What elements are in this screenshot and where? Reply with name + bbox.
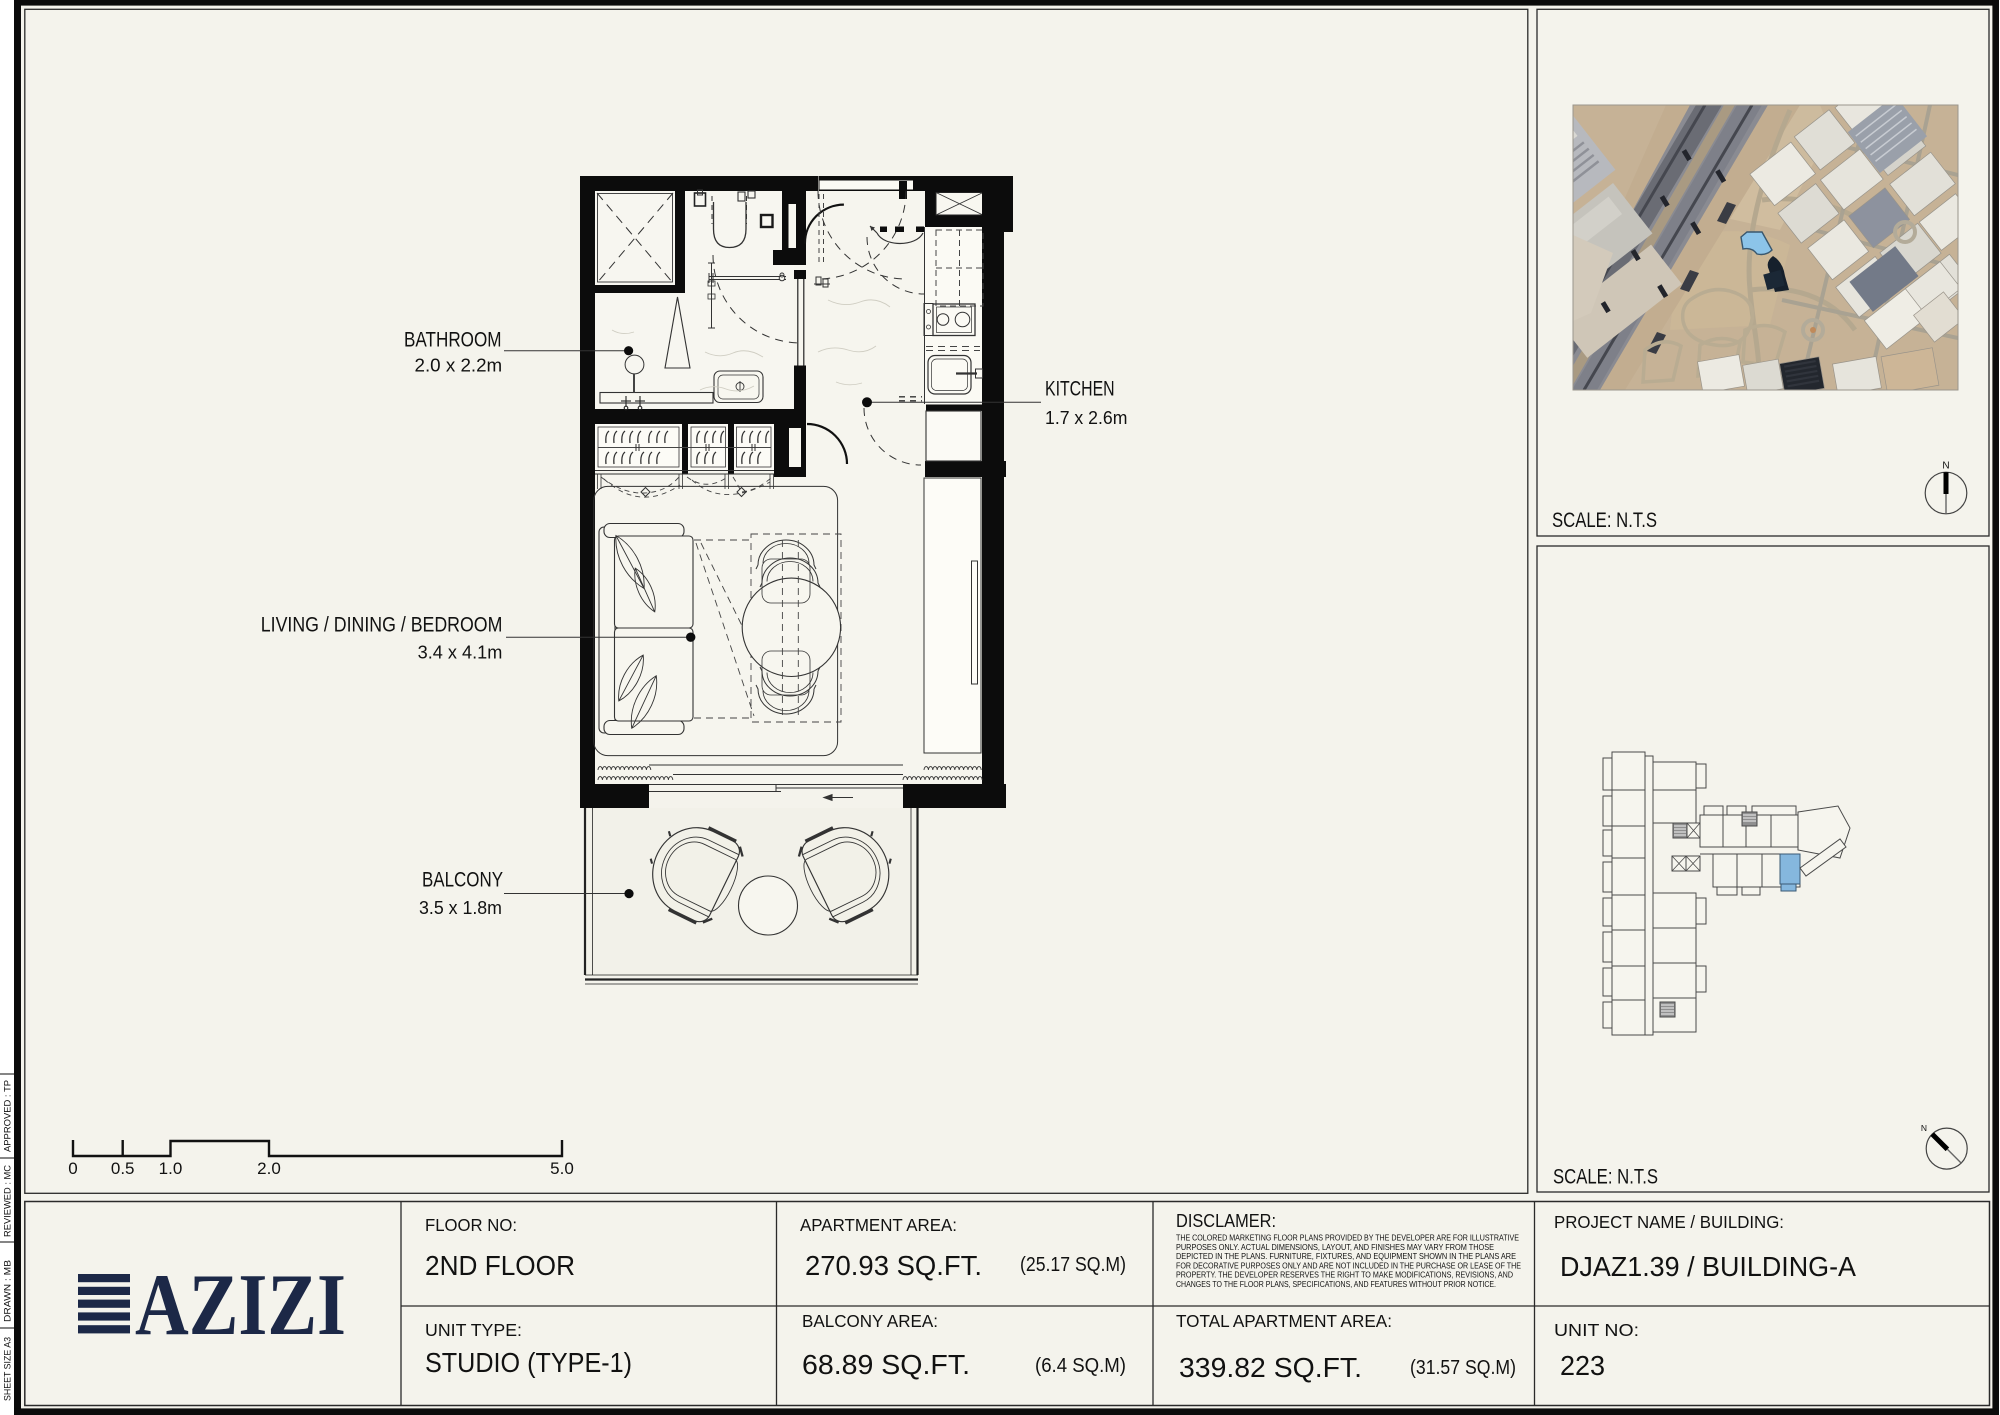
svg-text:FLOOR NO:: FLOOR NO:: [425, 1215, 517, 1235]
svg-text:0.5: 0.5: [111, 1159, 135, 1178]
svg-text:2.0: 2.0: [257, 1159, 281, 1178]
svg-text:(31.57 SQ.M): (31.57 SQ.M): [1410, 1357, 1516, 1379]
svg-text:SCALE: N.T.S: SCALE: N.T.S: [1553, 1166, 1658, 1189]
svg-text:68.89 SQ.FT.: 68.89 SQ.FT.: [802, 1349, 970, 1380]
svg-text:1.0: 1.0: [159, 1159, 183, 1178]
svg-text:LIVING / DINING / BEDROOM: LIVING / DINING / BEDROOM: [261, 614, 503, 637]
svg-text:3.4 x 4.1m: 3.4 x 4.1m: [418, 643, 503, 663]
svg-text:BATHROOM: BATHROOM: [404, 329, 502, 352]
svg-text:(6.4 SQ.M): (6.4 SQ.M): [1035, 1355, 1126, 1377]
svg-text:3.5 x 1.8m: 3.5 x 1.8m: [419, 898, 502, 918]
svg-text:0: 0: [68, 1159, 77, 1178]
svg-text:DJAZ1.39 / BUILDING-A: DJAZ1.39 / BUILDING-A: [1560, 1251, 1856, 1282]
svg-text:SCALE: N.T.S: SCALE: N.T.S: [1552, 509, 1657, 532]
svg-text:1.7 x 2.6m: 1.7 x 2.6m: [1045, 408, 1127, 428]
svg-text:APPROVED : TP: APPROVED : TP: [3, 1080, 14, 1152]
svg-text:2ND FLOOR: 2ND FLOOR: [425, 1250, 575, 1281]
svg-text:KITCHEN: KITCHEN: [1045, 378, 1115, 401]
svg-text:DISCLAMER:: DISCLAMER:: [1176, 1211, 1276, 1231]
svg-text:STUDIO (TYPE-1): STUDIO (TYPE-1): [425, 1347, 632, 1378]
svg-text:UNIT TYPE:: UNIT TYPE:: [425, 1320, 522, 1340]
svg-text:339.82 SQ.FT.: 339.82 SQ.FT.: [1179, 1352, 1362, 1383]
svg-text:270.93 SQ.FT.: 270.93 SQ.FT.: [805, 1250, 982, 1281]
svg-text:AZIZI: AZIZI: [135, 1257, 346, 1354]
svg-text:5.0: 5.0: [550, 1159, 574, 1178]
svg-text:BALCONY: BALCONY: [422, 869, 503, 892]
svg-text:APARTMENT AREA:: APARTMENT AREA:: [800, 1215, 957, 1235]
svg-text:UNIT NO:: UNIT NO:: [1554, 1320, 1639, 1340]
svg-text:REVIEWED : MC: REVIEWED : MC: [3, 1165, 14, 1237]
svg-text:CHANGES TO THE FLOOR PLANS, SP: CHANGES TO THE FLOOR PLANS, SPECIFICATIO…: [1176, 1279, 1496, 1289]
svg-text:DRAWN : MB: DRAWN : MB: [3, 1260, 14, 1322]
svg-text:PROJECT NAME / BUILDING:: PROJECT NAME / BUILDING:: [1554, 1212, 1784, 1232]
svg-text:(25.17 SQ.M): (25.17 SQ.M): [1020, 1254, 1126, 1276]
svg-text:2.0 x 2.2m: 2.0 x 2.2m: [415, 356, 503, 376]
svg-text:BALCONY AREA:: BALCONY AREA:: [802, 1311, 938, 1331]
svg-text:TOTAL APARTMENT AREA:: TOTAL APARTMENT AREA:: [1176, 1311, 1392, 1331]
svg-text:223: 223: [1560, 1350, 1605, 1381]
svg-text:N: N: [1942, 461, 1949, 472]
svg-text:SHEET SIZE A3: SHEET SIZE A3: [3, 1337, 14, 1401]
svg-text:N: N: [1921, 1123, 1927, 1133]
